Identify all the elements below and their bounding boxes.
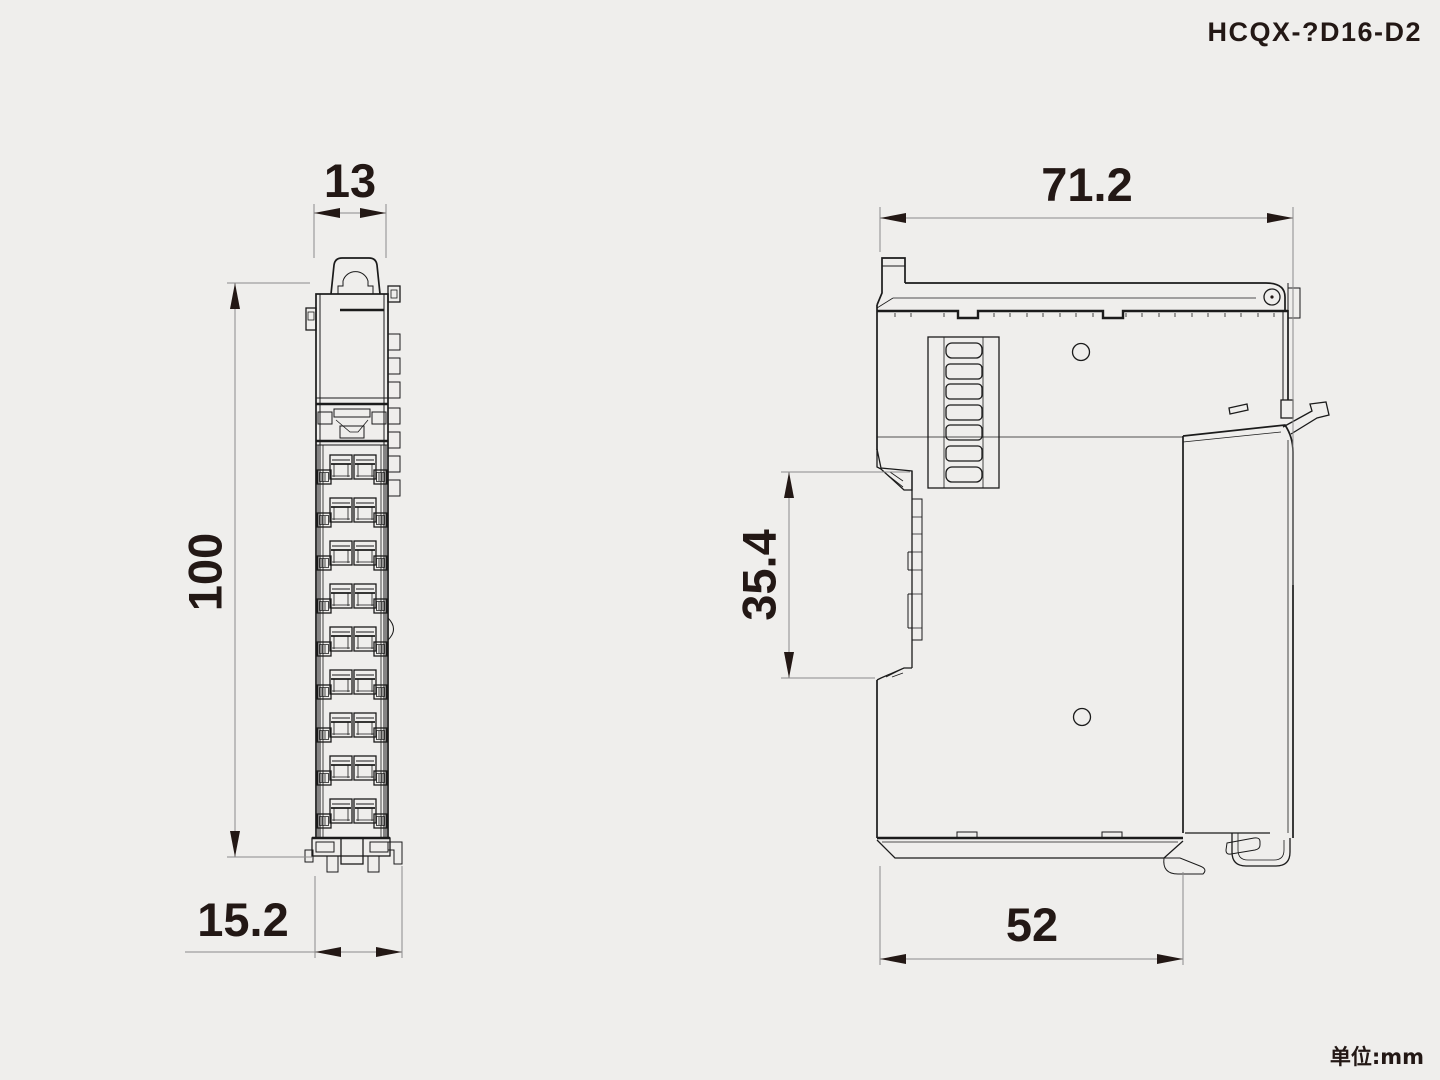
din-rail-notch [877,449,922,838]
unit-label: 单位:mm [1330,1045,1424,1069]
dim-front-height-label: 100 [178,533,231,611]
dim-front-width-top-label: 13 [324,154,376,207]
terminal-block [317,445,387,838]
side-bottom-base [877,832,1183,858]
mounting-hole-bottom [1074,709,1091,726]
dimension-side-width-top: 71.2 [880,158,1293,585]
front-view [305,258,402,872]
side-top-cap [877,258,1300,318]
collar-section [316,398,388,445]
dimension-drawing: 13 100 15.2 71.2 35.4 52 HCQX-?D16-D2 单位… [0,0,1440,1080]
mounting-hole-top [1073,344,1090,361]
dim-side-width-top-label: 71.2 [1041,158,1132,211]
page-title: HCQX-?D16-D2 [1207,17,1422,47]
dimension-side-width-bottom: 52 [880,866,1183,965]
side-view [877,258,1329,874]
dim-front-width-bottom-label: 15.2 [197,893,288,946]
dim-side-notch-height-label: 35.4 [732,529,785,620]
dim-side-width-bottom-label: 52 [1006,898,1058,951]
top-latch [331,258,380,294]
side-tabs [388,334,400,640]
vent-slots [928,337,999,488]
dimension-front-height: 100 [178,283,312,857]
side-body [877,305,1293,726]
dimension-front-width-top: 13 [314,154,386,258]
dimension-front-width-bottom: 15.2 [185,866,402,958]
dimension-side-notch-height: 35.4 [732,472,910,678]
technical-drawing-page: 13 100 15.2 71.2 35.4 52 HCQX-?D16-D2 单位… [0,0,1440,1080]
bottom-latch [305,838,402,872]
terminal-cover [1164,402,1329,874]
